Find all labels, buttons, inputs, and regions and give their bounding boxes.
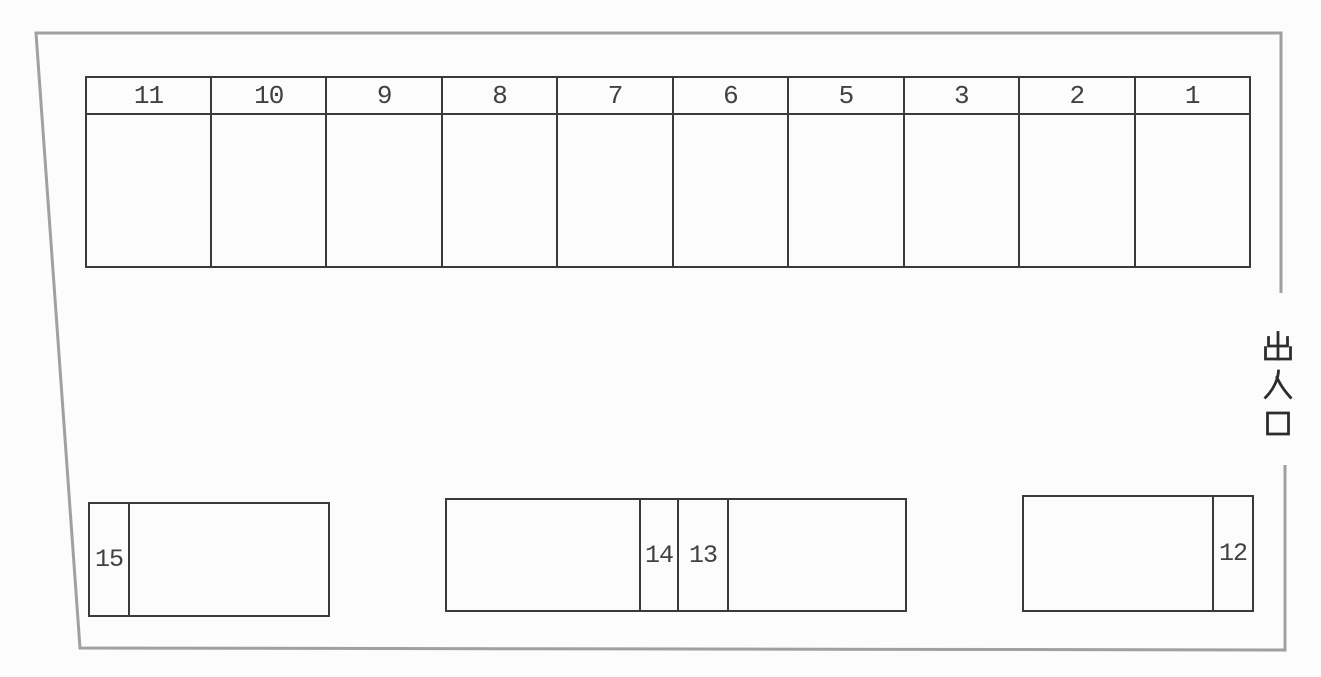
parking-stall-area <box>130 504 328 615</box>
space-number-label: 7 <box>558 78 671 115</box>
parking-row-top: 11 10 9 8 7 6 5 3 <box>85 76 1251 268</box>
space-number-label: 5 <box>789 78 902 115</box>
space-number-label: 11 <box>87 78 210 115</box>
parking-space-block-15: 15 <box>88 502 330 617</box>
parking-space-block-12: 12 <box>1022 495 1254 612</box>
parking-stall-area <box>905 115 1018 266</box>
space-number-label: 10 <box>212 78 325 115</box>
parking-space-cell-2: 2 <box>1020 78 1135 266</box>
parking-space-cell-6: 6 <box>674 78 789 266</box>
parking-stall-area <box>1024 497 1212 610</box>
parking-space-cell-9: 9 <box>327 78 442 266</box>
parking-space-cell-1: 1 <box>1136 78 1249 266</box>
parking-stall-area <box>674 115 787 266</box>
parking-stall-area <box>729 500 905 610</box>
parking-stall-area <box>87 115 210 266</box>
space-number-label: 3 <box>905 78 1018 115</box>
space-number-label: 15 <box>90 504 130 615</box>
parking-space-cell-10: 10 <box>212 78 327 266</box>
space-number-label: 13 <box>679 500 729 610</box>
parking-space-block-14-13: 14 13 <box>445 498 907 612</box>
space-number-label: 2 <box>1020 78 1133 115</box>
parking-stall-area <box>789 115 902 266</box>
parking-stall-area <box>558 115 671 266</box>
parking-space-cell-5: 5 <box>789 78 904 266</box>
space-number-label: 14 <box>641 500 679 610</box>
space-number-label: 1 <box>1136 78 1249 115</box>
space-number-label: 12 <box>1212 497 1252 610</box>
space-number-label: 8 <box>443 78 556 115</box>
parking-stall-area <box>327 115 440 266</box>
parking-stall-area <box>1136 115 1249 266</box>
parking-space-cell-3: 3 <box>905 78 1020 266</box>
parking-stall-area <box>1020 115 1133 266</box>
parking-stall-area <box>212 115 325 266</box>
space-number-label: 9 <box>327 78 440 115</box>
parking-lot-map: 11 10 9 8 7 6 5 3 <box>0 0 1321 677</box>
space-number-label: 6 <box>674 78 787 115</box>
parking-space-cell-7: 7 <box>558 78 673 266</box>
entrance-exit-kanji-icon <box>1258 331 1298 437</box>
parking-space-cell-8: 8 <box>443 78 558 266</box>
parking-space-cell-11: 11 <box>87 78 212 266</box>
entrance-exit-label: 出入口 <box>1258 331 1298 437</box>
parking-stall-area <box>443 115 556 266</box>
parking-stall-area <box>447 500 641 610</box>
